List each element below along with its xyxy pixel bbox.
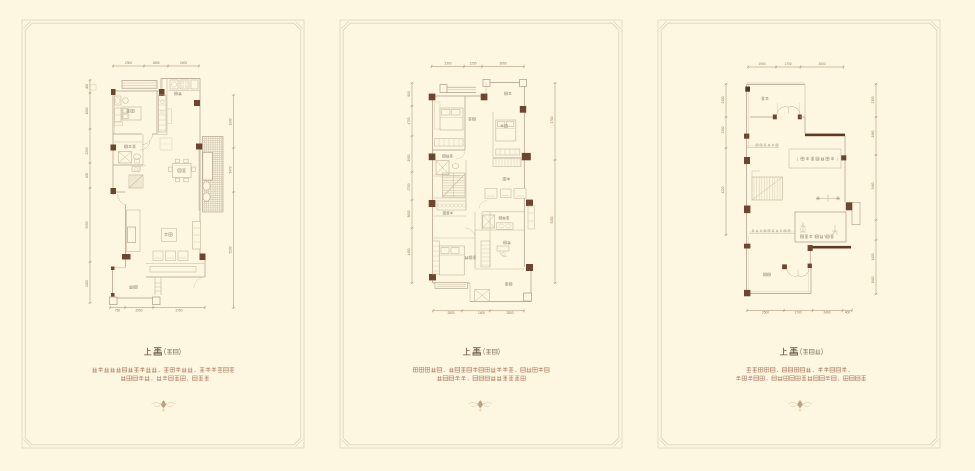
svg-text:2400: 2400 [85,280,89,287]
svg-text:4400: 4400 [407,248,411,255]
svg-text:1700: 1700 [794,311,801,315]
svg-text:1900: 1900 [871,276,875,283]
svg-text:2050: 2050 [135,309,142,313]
svg-text:1000: 1000 [85,107,89,114]
svg-text:5230: 5230 [228,246,232,253]
svg-text:2150: 2150 [871,96,875,103]
svg-text:200: 200 [85,173,89,179]
svg-text:2300: 2300 [444,61,451,65]
svg-text:1700: 1700 [784,62,791,66]
svg-text:3000: 3000 [499,61,506,65]
svg-text:2700: 2700 [407,183,411,190]
svg-text:1250: 1250 [469,61,476,65]
svg-text:2800: 2800 [506,311,513,315]
svg-text:2400: 2400 [823,311,830,315]
svg-text:3460: 3460 [871,182,875,189]
svg-text:1850: 1850 [152,61,159,65]
svg-text:1480: 1480 [871,130,875,137]
svg-text:1900: 1900 [407,154,411,161]
svg-text:1400: 1400 [478,311,485,315]
svg-text:2300: 2300 [721,126,725,133]
svg-text:400: 400 [85,84,89,90]
svg-text:4750: 4750 [407,117,411,124]
svg-text:2250: 2250 [85,147,89,154]
svg-text:2300: 2300 [125,61,132,65]
svg-text:): ) [837,157,839,161]
svg-text:1400: 1400 [871,253,875,260]
svg-text:5950: 5950 [85,221,89,228]
svg-text:2400: 2400 [180,61,187,65]
svg-text:2800: 2800 [447,311,454,315]
svg-text:(: ( [797,157,799,161]
svg-text:800: 800 [407,91,411,97]
svg-text:400: 400 [845,311,851,315]
svg-text:2500: 2500 [762,311,769,315]
svg-text:3470: 3470 [228,166,232,173]
svg-text:1930: 1930 [228,118,232,125]
svg-text:1700: 1700 [550,116,554,123]
svg-text:2100: 2100 [721,96,725,103]
svg-text:3750: 3750 [175,309,182,313]
svg-text:3000: 3000 [818,62,825,66]
svg-text:1900: 1900 [758,62,765,66]
svg-text:750: 750 [115,309,121,313]
svg-text:5200: 5200 [550,216,554,223]
svg-text:4220: 4220 [721,186,725,193]
svg-text:3600: 3600 [407,210,411,217]
